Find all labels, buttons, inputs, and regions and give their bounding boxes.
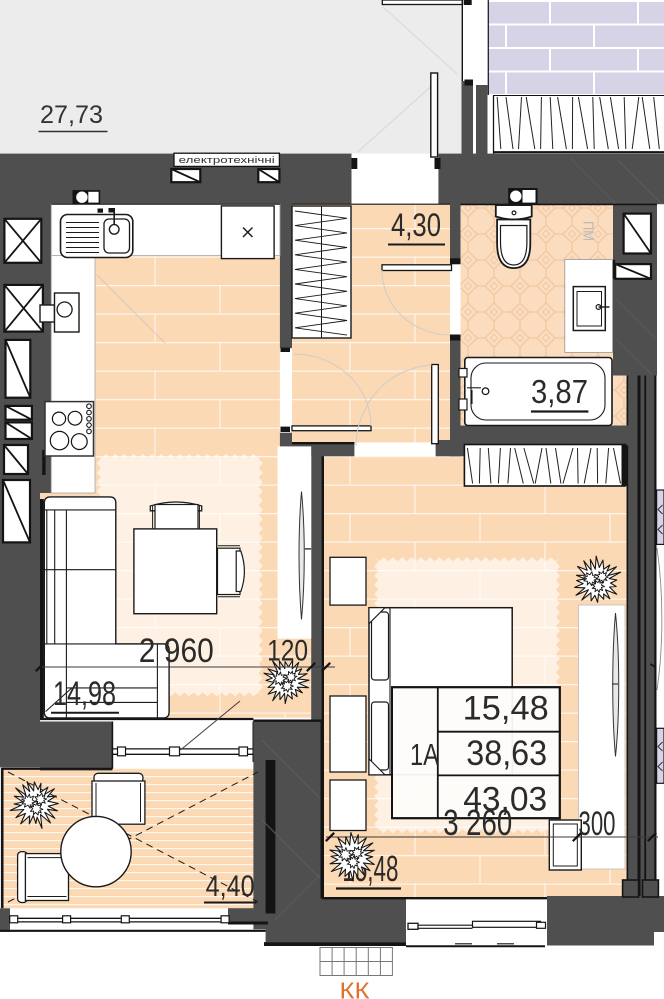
svg-text:4,30: 4,30 bbox=[391, 207, 441, 243]
svg-text:1A: 1A bbox=[410, 737, 439, 772]
svg-text:електротехнічні: електротехнічні bbox=[179, 155, 275, 166]
svg-text:14,98: 14,98 bbox=[53, 675, 116, 713]
svg-text:2 960: 2 960 bbox=[139, 632, 214, 670]
svg-text:ПМ: ПМ bbox=[580, 221, 596, 241]
svg-text:120: 120 bbox=[267, 635, 308, 668]
svg-text:4,40: 4,40 bbox=[206, 870, 255, 903]
svg-text:300: 300 bbox=[579, 805, 616, 843]
svg-text:КК: КК bbox=[340, 978, 371, 999]
svg-text:15,48: 15,48 bbox=[463, 690, 549, 728]
svg-text:3 260: 3 260 bbox=[443, 802, 512, 843]
svg-text:3,87: 3,87 bbox=[531, 373, 588, 410]
svg-text:38,63: 38,63 bbox=[466, 734, 547, 773]
svg-text:27,73: 27,73 bbox=[40, 101, 103, 129]
